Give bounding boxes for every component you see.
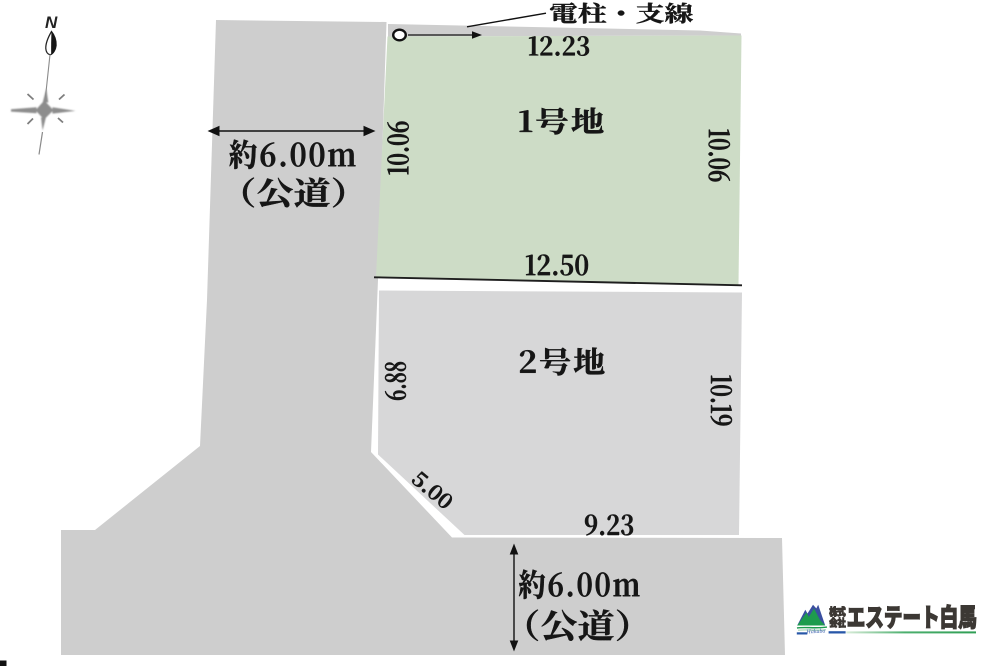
- svg-text:N: N: [45, 13, 58, 32]
- svg-text:Hakuba: Hakuba: [805, 629, 825, 636]
